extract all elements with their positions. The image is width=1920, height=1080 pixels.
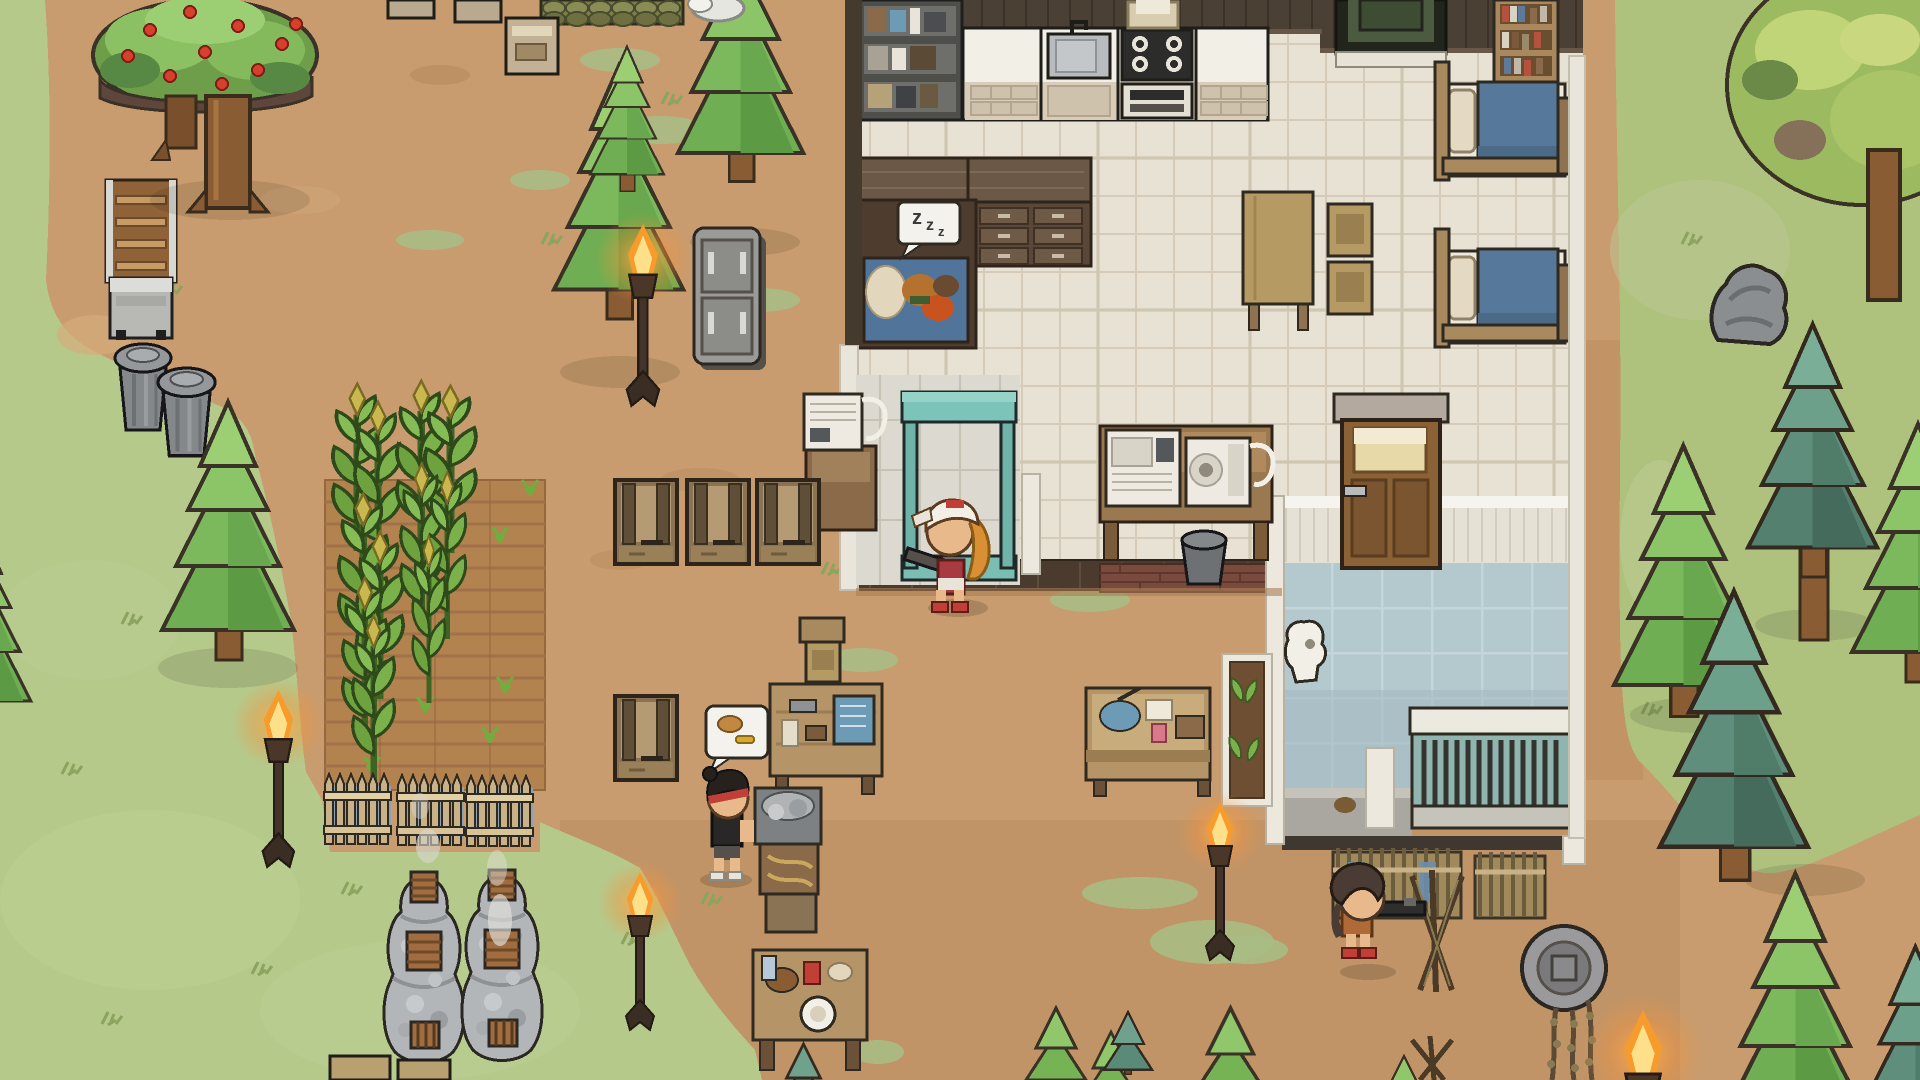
svg-text:z: z xyxy=(926,217,934,234)
svg-text:z: z xyxy=(938,224,945,239)
svg-text:z: z xyxy=(912,207,922,229)
